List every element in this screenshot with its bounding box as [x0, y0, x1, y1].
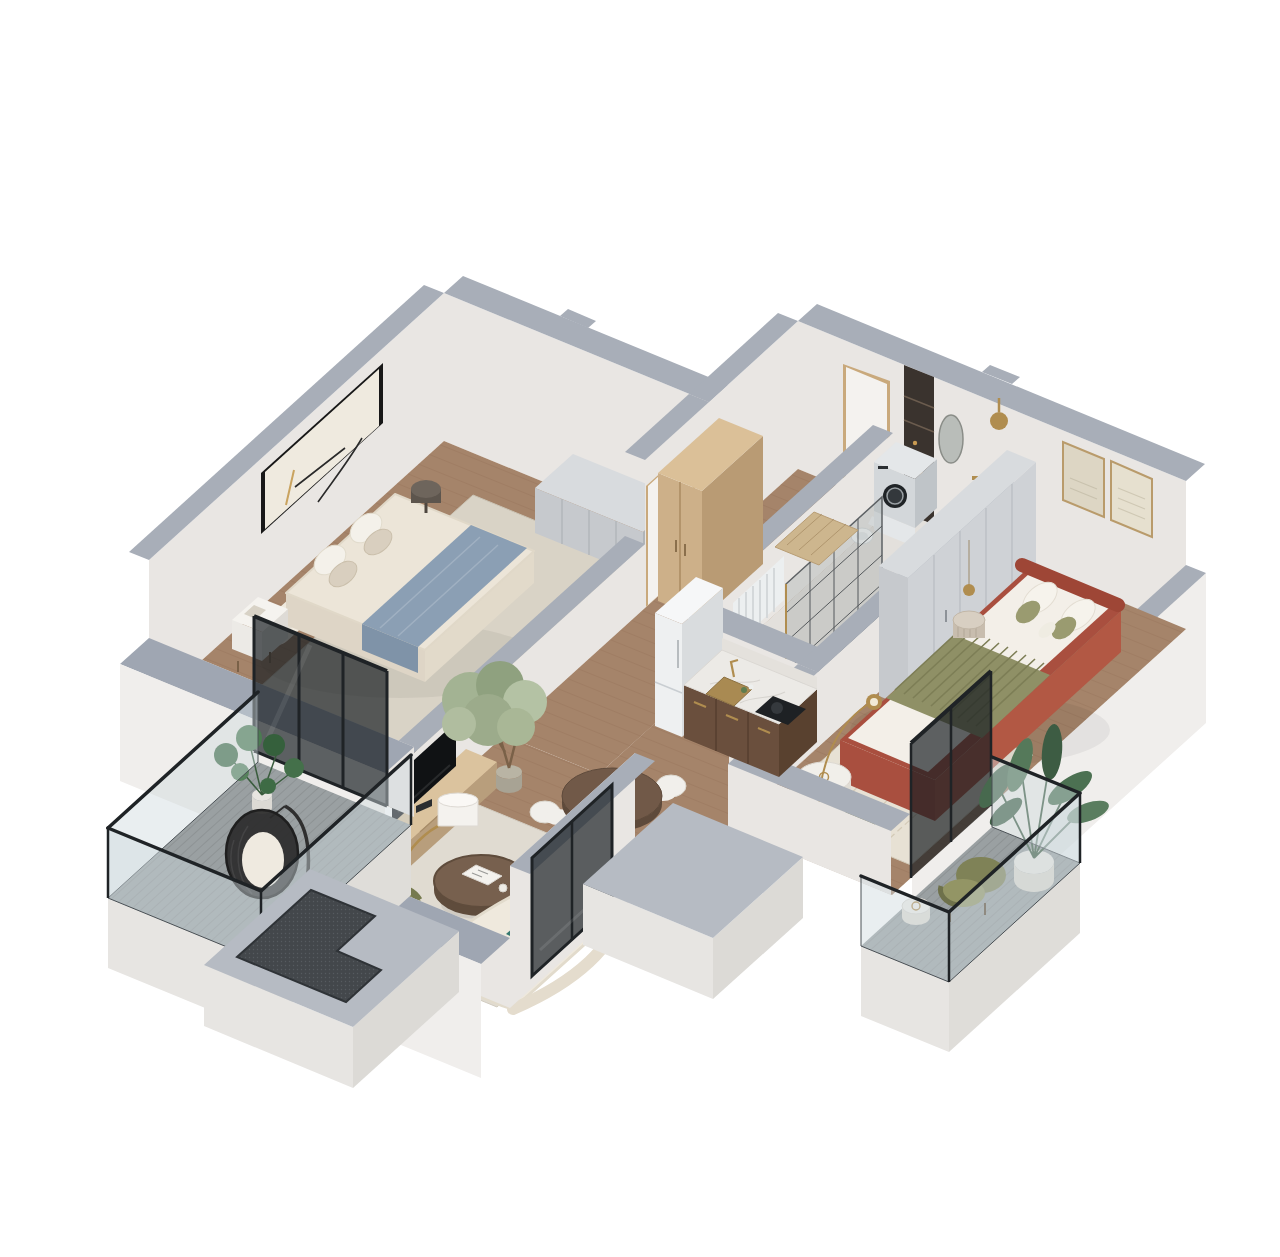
tree-canopy-5: [497, 708, 535, 746]
cup: [499, 884, 507, 892]
fridge-front: [655, 613, 682, 737]
pedestal-top: [953, 611, 985, 629]
pedestal-side-table: [953, 611, 985, 638]
oval-mirror: [939, 415, 963, 463]
floor-plan-render: [0, 0, 1280, 1257]
bottle-white: [749, 685, 754, 690]
monstera-leaf-3: [263, 734, 285, 756]
washer-drum-glass: [887, 488, 903, 504]
tree-canopy-6: [442, 707, 476, 741]
monstera-leaf-6: [260, 778, 276, 794]
lamp-shade-top: [438, 793, 478, 807]
washer-display: [878, 466, 888, 469]
cooktop-pot: [771, 702, 783, 714]
round-table-top: [411, 480, 441, 498]
shower-head-disc: [990, 412, 1008, 430]
arc2-bulb: [870, 698, 878, 706]
pendant-shade: [963, 584, 975, 596]
niche-bottle-1: [913, 441, 917, 445]
isometric-apartment-svg: [0, 0, 1280, 1257]
bottle-green: [741, 687, 747, 693]
monstera-leaf-4: [284, 758, 304, 778]
